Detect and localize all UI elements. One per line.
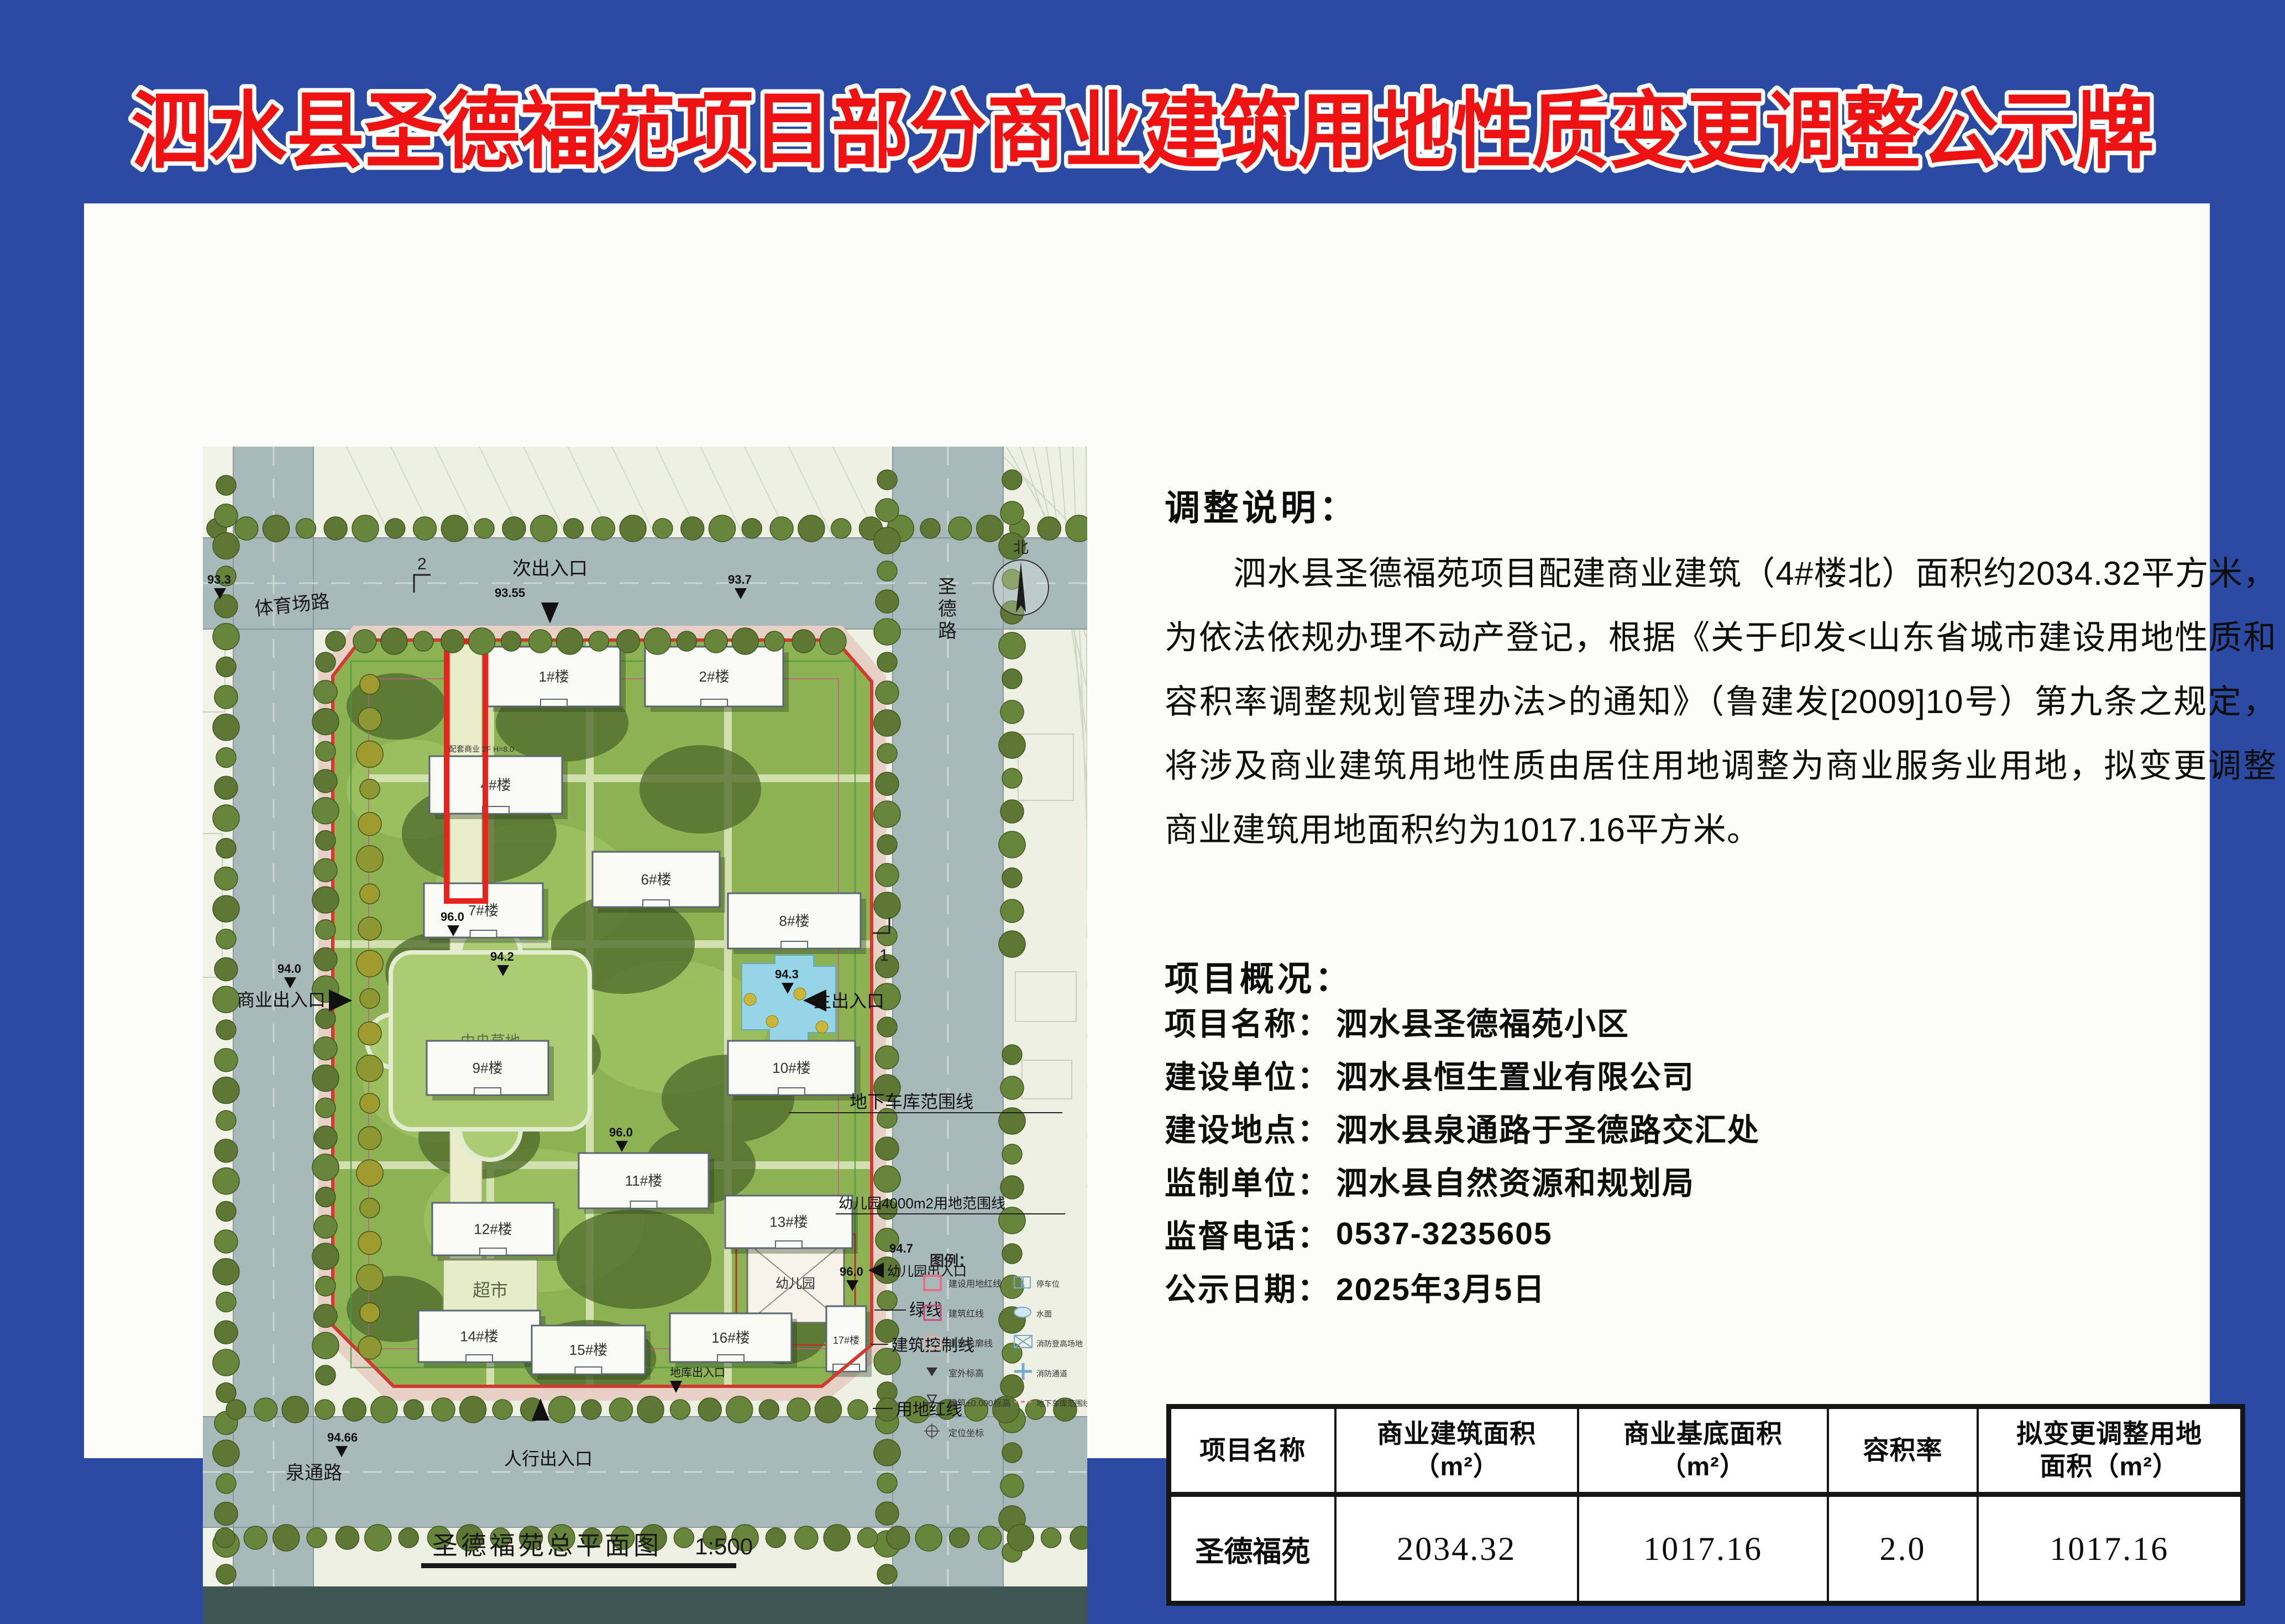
- tree-icon: [357, 846, 383, 872]
- tree-icon: [474, 518, 494, 538]
- building-footprint: 9#楼: [427, 1041, 554, 1101]
- tree-icon: [381, 628, 407, 654]
- legend-title: 图例：: [930, 1253, 973, 1269]
- tree-icon: [213, 1349, 239, 1376]
- tree-icon: [950, 1528, 969, 1548]
- tree-icon: [764, 631, 784, 651]
- tree-icon: [314, 858, 337, 882]
- overview-item-label: 监制单位：: [1165, 1158, 1330, 1203]
- tree-icon: [213, 805, 239, 831]
- building-label: 10#楼: [772, 1060, 810, 1076]
- tree-icon: [403, 1400, 423, 1419]
- tree-icon: [214, 958, 238, 981]
- tree-icon: [358, 708, 381, 731]
- content-panel: 中央草地 超市: [84, 203, 2210, 1458]
- tree-icon: [214, 867, 238, 890]
- supermarket-label: 超市: [473, 1280, 508, 1300]
- tree-icon: [874, 801, 900, 827]
- overview-item-date: 公示日期： 2025年3月5日: [1165, 1260, 2277, 1313]
- legend-item-label: 消防通道: [1036, 1369, 1067, 1378]
- building-footprint: 6#楼: [593, 852, 725, 913]
- tree-icon: [214, 1049, 238, 1072]
- cell-plot-ratio: 2.0: [1828, 1495, 1977, 1604]
- tree-icon: [358, 1232, 381, 1255]
- board-title-art: 泗水县圣德福苑项目部分商业建筑用地性质变更调整公示牌: [0, 40, 2285, 195]
- tree-icon: [216, 475, 236, 495]
- elev-93-3: 93.3: [207, 573, 231, 586]
- tree-icon: [213, 895, 239, 922]
- building-label: 8#楼: [779, 913, 810, 929]
- kindergarten-label: 幼儿园: [775, 1276, 815, 1291]
- tree-icon: [357, 1265, 383, 1291]
- legend-item-label: 建筑±0.000标高: [948, 1398, 1011, 1408]
- tree-icon: [357, 950, 383, 977]
- legend-item-label: 定位坐标: [948, 1428, 984, 1438]
- tree-icon: [360, 1093, 380, 1113]
- tree-icon: [742, 518, 762, 538]
- tree-icon: [877, 1473, 897, 1493]
- building-footprint: 2#楼: [645, 647, 789, 712]
- tree-icon: [1007, 1525, 1034, 1551]
- tree-icon: [352, 515, 379, 542]
- kg-line-label: 幼儿园4000m2用地范围线: [838, 1195, 1005, 1212]
- tree-icon: [357, 1160, 383, 1186]
- legend-item-label: 消防登高场地: [1036, 1339, 1083, 1348]
- tree-icon: [413, 517, 437, 540]
- adjustment-heading: 调整说明：: [1165, 480, 1358, 531]
- overview-item-phone: 监督电话： 0537-3235605: [1165, 1207, 2277, 1260]
- tree-icon: [529, 630, 552, 653]
- tree-icon: [316, 1187, 336, 1207]
- tree-icon: [216, 1474, 236, 1494]
- elev-93-55: 93.55: [495, 586, 525, 600]
- garage-line-label: 地下车库范围线: [850, 1092, 973, 1112]
- tree-icon: [213, 1077, 239, 1103]
- overview-item-location: 建设地点： 泗水县泉通路于圣德路交汇处: [1165, 1101, 2277, 1154]
- tree-icon: [999, 632, 1025, 659]
- tree-icon: [358, 813, 381, 836]
- tree-icon: [314, 1126, 337, 1149]
- notice-board: 泗水县圣德福苑项目部分商业建筑用地性质变更调整公示牌: [0, 0, 2285, 1523]
- tree-icon: [216, 839, 236, 858]
- tree-icon: [216, 657, 236, 677]
- overview-item-value: 泗水县恒生置业有限公司: [1336, 1052, 1695, 1097]
- tree-icon: [385, 518, 405, 538]
- tree-icon: [877, 1564, 897, 1584]
- tree-icon: [831, 518, 851, 538]
- tree-icon: [336, 1526, 359, 1549]
- section-1: 1: [879, 946, 889, 965]
- tree-icon: [1002, 1144, 1022, 1164]
- tree-icon: [874, 1439, 900, 1466]
- tree-icon: [312, 1154, 339, 1181]
- tree-icon: [792, 630, 815, 653]
- tree-icon: [877, 652, 897, 672]
- tree-icon: [316, 831, 336, 851]
- tree-icon: [360, 884, 380, 904]
- legend-item-label: 水面: [1036, 1309, 1052, 1318]
- tree-icon: [709, 515, 735, 542]
- tree-icon: [214, 1139, 238, 1162]
- tree-icon: [1066, 515, 1087, 542]
- tree-icon: [616, 630, 640, 653]
- elev-93-7: 93.7: [728, 573, 752, 586]
- tree-icon: [732, 628, 758, 654]
- tree-icon: [360, 988, 380, 1008]
- tree-icon: [887, 1526, 910, 1549]
- tree-icon: [216, 1201, 236, 1221]
- building-label: 17#楼: [833, 1335, 860, 1346]
- tree-icon: [874, 710, 900, 736]
- page-title: 泗水县圣德福苑项目部分商业建筑用地性质变更调整公示牌: [131, 85, 2154, 179]
- building-footprint: 10#楼: [728, 1041, 861, 1101]
- tree-icon: [358, 1127, 381, 1150]
- site-plan-canvas: 中央草地 超市: [203, 447, 1087, 1624]
- tree-icon: [1000, 700, 1024, 724]
- building-footprint: 15#楼: [532, 1326, 651, 1380]
- tree-icon: [358, 1022, 381, 1045]
- entry-pedestrian-label: 人行出入口: [504, 1449, 593, 1469]
- tree-icon: [296, 518, 316, 538]
- adjustment-body: 泗水县圣德福苑项目配建商业建筑（4#楼北）面积约2034.32平方米，为依法依规…: [1165, 542, 2277, 862]
- overview-item-value: 泗水县圣德福苑小区: [1336, 999, 1629, 1044]
- tree-icon: [874, 527, 900, 554]
- cell-project-name: 圣德福苑: [1169, 1495, 1335, 1604]
- tree-icon: [548, 1396, 575, 1423]
- tree-icon: [215, 1528, 235, 1548]
- tree-icon: [460, 1396, 486, 1423]
- tree-icon: [1002, 1343, 1022, 1363]
- tree-icon: [316, 741, 336, 761]
- tree-icon: [820, 628, 846, 654]
- tree-icon: [876, 863, 899, 887]
- overview-item-label: 建设单位：: [1165, 1052, 1330, 1097]
- tree-icon: [214, 685, 238, 709]
- building-label: 2#楼: [699, 668, 730, 685]
- tree-icon: [244, 1526, 267, 1549]
- tree-icon: [876, 772, 899, 795]
- tree-icon: [214, 1321, 238, 1344]
- tree-icon: [670, 1400, 690, 1419]
- tree-icon: [581, 1400, 601, 1419]
- tree-icon: [698, 1398, 721, 1421]
- tree-icon: [214, 1502, 238, 1526]
- tree-icon: [977, 515, 1003, 542]
- overview-item-builder: 建设单位： 泗水县恒生置业有限公司: [1165, 1048, 2277, 1101]
- tree-icon: [358, 917, 381, 940]
- overview-item-label: 项目名称：: [1165, 999, 1330, 1044]
- tree-icon: [1041, 1528, 1061, 1548]
- tree-icon: [1002, 470, 1022, 490]
- tree-icon: [314, 680, 337, 704]
- tree-icon: [1000, 1474, 1024, 1497]
- cell-adjusted-land-area: 1017.16: [1978, 1495, 2243, 1604]
- tree-icon: [254, 1398, 277, 1421]
- tree-icon: [312, 1065, 339, 1092]
- tree-icon: [371, 1396, 397, 1423]
- tree-icon: [226, 1400, 246, 1419]
- map-caption: 圣德福苑总平面图: [432, 1531, 662, 1560]
- building-label: 14#楼: [460, 1328, 498, 1345]
- tree-icon: [876, 499, 899, 522]
- tree-icon: [316, 1365, 336, 1385]
- tree-icon: [674, 1528, 694, 1548]
- photo-edge-band: [203, 1586, 1087, 1624]
- tree-icon: [314, 769, 337, 793]
- overview-item-label: 公示日期：: [1165, 1264, 1330, 1309]
- tree-icon: [704, 630, 727, 653]
- building-label: 15#楼: [569, 1342, 607, 1358]
- tree-icon: [874, 619, 900, 645]
- overview-item-label: 监督电话：: [1165, 1211, 1330, 1256]
- building-footprint: 8#楼: [728, 893, 866, 954]
- road-right-label: 圣德路: [938, 577, 957, 642]
- tree-icon: [501, 631, 521, 651]
- tree-icon: [312, 887, 339, 913]
- tree-icon: [591, 517, 615, 540]
- entry-garage-label: 地库出入口: [670, 1366, 725, 1379]
- overview-item-supervisor: 监制单位： 泗水县自然资源和规划局: [1165, 1154, 2277, 1207]
- tree-icon: [1002, 868, 1022, 888]
- tree-icon: [653, 518, 673, 538]
- table-header-row: 项目名称 商业建筑面积 （m²） 商业基底面积 （m²） 容积率 拟变更调整用地…: [1169, 1407, 2243, 1495]
- legend-item-label: 地下车库范围线: [1036, 1399, 1087, 1408]
- tree-icon: [216, 748, 236, 768]
- tree-icon: [877, 743, 897, 763]
- tree-icon: [213, 1168, 239, 1195]
- commercial-note: 配套商业 2F H=8.0: [449, 745, 514, 753]
- tree-icon: [726, 1396, 753, 1423]
- tree-icon: [316, 1009, 336, 1029]
- tree-icon: [999, 732, 1025, 758]
- legend-item-label: 停车位: [1036, 1280, 1060, 1288]
- tree-icon: [589, 631, 609, 651]
- section-2: 2: [417, 555, 427, 573]
- tree-icon: [1000, 899, 1024, 923]
- tree-icon: [413, 631, 433, 651]
- tree-icon: [644, 628, 670, 654]
- tree-icon: [1002, 1244, 1022, 1264]
- col-commercial-floor-area: 商业建筑面积 （m²）: [1335, 1407, 1578, 1495]
- tree-icon: [766, 1528, 785, 1548]
- tree-icon: [877, 835, 897, 855]
- tree-icon: [216, 1020, 236, 1040]
- tree-icon: [213, 624, 239, 650]
- tree-icon: [1002, 1045, 1022, 1065]
- tree-icon: [216, 1110, 236, 1130]
- entry-commercial-label: 商业出入口: [237, 990, 326, 1010]
- tree-icon: [324, 517, 347, 540]
- tree-icon: [358, 1336, 381, 1359]
- building-label: 11#楼: [625, 1172, 662, 1189]
- road-bottom-label: 泉通路: [286, 1463, 342, 1484]
- overview-item-name: 项目名称： 泗水县圣德福苑小区: [1165, 995, 2277, 1048]
- tree-icon: [216, 1564, 236, 1584]
- tree-icon: [874, 892, 900, 919]
- tree-icon: [876, 681, 899, 704]
- tree-icon: [531, 515, 557, 542]
- tree-icon: [312, 709, 339, 735]
- tree-icon: [314, 948, 337, 971]
- overview-item-value: 泗水县自然资源和规划局: [1336, 1158, 1695, 1203]
- tree-icon: [360, 1303, 380, 1323]
- elev-94-3: 94.3: [775, 967, 799, 981]
- tree-icon: [681, 517, 704, 540]
- tree-icon: [316, 920, 336, 940]
- tree-icon: [213, 714, 239, 741]
- tree-icon: [557, 628, 583, 654]
- tree-icon: [312, 798, 339, 824]
- legend-item-label: 建设用地红线: [948, 1279, 1002, 1289]
- map-caption-scale: 1:500: [695, 1533, 753, 1559]
- tree-icon: [314, 1037, 337, 1060]
- overview-item-value: 泗水县泉通路于圣德路交汇处: [1336, 1105, 1760, 1150]
- cell-commercial-base-area: 1017.16: [1578, 1495, 1828, 1604]
- building-footprint: 4#楼: [429, 756, 568, 819]
- tree-icon: [858, 1528, 878, 1548]
- tree-icon: [1002, 669, 1022, 689]
- tree-icon: [876, 1137, 899, 1160]
- building-label: 7#楼: [468, 902, 499, 919]
- tree-icon: [282, 1396, 308, 1423]
- tree-icon: [492, 1400, 512, 1419]
- tree-icon: [314, 1305, 337, 1328]
- tree-icon: [877, 1017, 897, 1037]
- building-label: 16#楼: [711, 1329, 750, 1346]
- col-adjusted-land-area: 拟变更调整用地 面积（m²）: [1978, 1407, 2243, 1495]
- tree-icon: [316, 1276, 336, 1296]
- tree-icon: [877, 926, 897, 946]
- building-footprint: 17#楼: [826, 1306, 872, 1377]
- tree-icon: [326, 631, 345, 651]
- tree-icon: [316, 652, 336, 672]
- building-footprint: 1#楼: [488, 647, 626, 712]
- tree-icon: [609, 1398, 632, 1421]
- elev-94-7: 94.7: [889, 1241, 913, 1255]
- tree-icon: [213, 986, 239, 1013]
- tree-icon: [316, 1098, 336, 1118]
- tree-icon: [759, 1400, 779, 1419]
- tree-icon: [213, 1440, 239, 1466]
- building-footprint: 11#楼: [579, 1153, 714, 1214]
- tree-icon: [360, 1198, 380, 1218]
- table-row: 圣德福苑 2034.32 1017.16 2.0 1017.16: [1169, 1495, 2243, 1604]
- tree-icon: [1000, 1076, 1024, 1099]
- elev-96-0c: 96.0: [840, 1265, 863, 1279]
- tree-icon: [620, 515, 646, 542]
- tree-icon: [815, 1396, 841, 1423]
- tree-icon: [365, 1525, 391, 1551]
- tree-icon: [999, 931, 1025, 957]
- tree-icon: [314, 1215, 337, 1238]
- elev-96-0b: 96.0: [609, 1125, 633, 1139]
- elev-94-2: 94.2: [490, 950, 514, 963]
- tree-icon: [1002, 1443, 1022, 1463]
- caption-rule: [421, 1563, 736, 1568]
- tree-icon: [307, 1528, 327, 1548]
- building-footprint: 13#楼: [725, 1196, 858, 1254]
- tree-icon: [353, 630, 376, 653]
- building-label: 9#楼: [473, 1060, 503, 1076]
- tree-icon: [1000, 501, 1024, 525]
- building-footprint: 12#楼: [432, 1203, 559, 1261]
- tree-icon: [787, 1398, 810, 1421]
- cell-commercial-floor-area: 2034.32: [1335, 1495, 1578, 1604]
- tree-icon: [877, 470, 897, 490]
- tree-icon: [399, 1528, 418, 1548]
- area-summary-table: 项目名称 商业建筑面积 （m²） 商业基底面积 （m²） 容积率 拟变更调整用地…: [1166, 1404, 2245, 1606]
- tree-icon: [1000, 800, 1024, 823]
- overview-item-value: 2025年3月5日: [1336, 1264, 1545, 1309]
- tree-icon: [312, 1243, 339, 1270]
- tree-icon: [877, 1291, 897, 1311]
- tree-icon: [357, 741, 383, 767]
- tree-icon: [1000, 1375, 1024, 1398]
- tree-icon: [770, 517, 793, 540]
- tree-icon: [235, 517, 258, 540]
- tree-icon: [1002, 768, 1022, 788]
- tree-icon: [441, 630, 464, 653]
- tree-icon: [214, 595, 238, 618]
- col-commercial-base-area: 商业基底面积 （m²）: [1578, 1407, 1828, 1495]
- entry-secondary-label: 次出入口: [512, 558, 588, 579]
- tree-icon: [824, 1525, 850, 1551]
- tree-icon: [214, 776, 238, 799]
- tree-icon: [876, 590, 899, 613]
- tree-icon: [216, 929, 236, 949]
- tree-icon: [915, 1525, 942, 1551]
- tree-icon: [1037, 517, 1061, 540]
- tree-icon: [564, 518, 584, 538]
- elev-94-66: 94.66: [327, 1431, 358, 1444]
- tree-icon: [343, 1398, 366, 1421]
- building-label: 13#楼: [769, 1214, 808, 1230]
- compass-north-label: 北: [1013, 539, 1029, 556]
- tree-icon: [999, 1108, 1025, 1134]
- tree-icon: [876, 1502, 899, 1525]
- legend-item-label: 室外标高: [948, 1369, 984, 1379]
- tree-icon: [637, 1396, 664, 1423]
- tree-icon: [360, 674, 380, 694]
- tree-icon: [502, 517, 526, 540]
- tree-icon: [876, 1046, 899, 1069]
- tree-icon: [213, 1259, 239, 1285]
- tree-icon: [273, 1525, 300, 1551]
- tree-icon: [1000, 1275, 1024, 1298]
- tree-icon: [848, 1400, 868, 1419]
- building-label: 6#楼: [641, 871, 672, 888]
- tree-icon: [999, 831, 1025, 858]
- tree-icon: [312, 1332, 339, 1359]
- col-plot-ratio: 容积率: [1828, 1407, 1977, 1495]
- tree-icon: [214, 504, 238, 527]
- overview-heading: 项目概况：: [1165, 951, 1353, 1000]
- overview-item-label: 建设地点：: [1165, 1105, 1330, 1150]
- tree-icon: [948, 517, 972, 540]
- tree-icon: [441, 515, 468, 542]
- site-plan-map: 中央草地 超市: [203, 447, 1087, 1624]
- building-footprint: 16#楼: [670, 1313, 797, 1368]
- overview-item-value: 0537-3235605: [1336, 1216, 1553, 1252]
- building-footprint: 14#楼: [418, 1311, 546, 1368]
- col-project-name: 项目名称: [1169, 1407, 1335, 1495]
- tree-icon: [469, 628, 495, 654]
- legend-item-label: 建筑轮廓线: [948, 1339, 993, 1349]
- tree-icon: [216, 1292, 236, 1312]
- tree-icon: [677, 631, 696, 651]
- tree-icon: [432, 1398, 455, 1421]
- tree-icon: [920, 518, 940, 538]
